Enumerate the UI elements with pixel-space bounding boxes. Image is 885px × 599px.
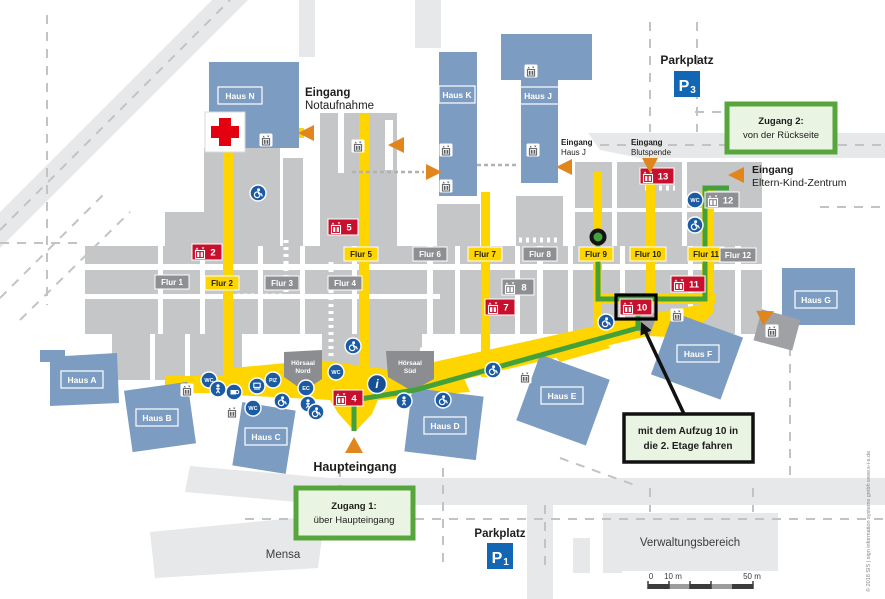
haus-c-label: Haus C: [251, 432, 280, 442]
wheelchair-icon: [485, 362, 501, 378]
svg-text:P: P: [679, 78, 690, 95]
wc-icon: WC: [328, 364, 344, 380]
parking-p1-label: Parkplatz: [474, 528, 525, 540]
parking-row: [573, 538, 590, 573]
haus-k-label: Haus K: [442, 90, 472, 100]
campus-map-page: Hörsaal Nord Hörsaal Süd: [0, 0, 885, 599]
elevator-icon: [527, 144, 540, 157]
wheelchair-icon: [274, 393, 290, 409]
scale-bar: 0 10 m 50 m: [648, 572, 761, 589]
campus-map: Hörsaal Nord Hörsaal Süd: [0, 0, 885, 599]
svg-text:mit dem Aufzug 10 in: mit dem Aufzug 10 in: [638, 426, 738, 437]
wheelchair-icon: [435, 392, 451, 408]
svg-text:WC: WC: [690, 198, 699, 204]
elevator-icon: [525, 65, 538, 78]
svg-text:3: 3: [690, 85, 696, 96]
svg-text:Blutspende: Blutspende: [631, 148, 672, 157]
elevator-5-badge: 5: [346, 222, 352, 233]
haus-a-label: Haus A: [68, 375, 97, 385]
wheelchair-icon: [345, 338, 361, 354]
entrance-notaufnahme-marker: [298, 125, 314, 141]
flur-4-badge: Flur 4: [334, 279, 356, 288]
svg-text:Süd: Süd: [404, 368, 416, 375]
svg-text:Haus J: Haus J: [561, 148, 586, 157]
callout-zugang2: Zugang 2: von der Rückseite: [727, 104, 835, 152]
building-haus-k: [439, 52, 477, 196]
elevator-11-badge: 11: [689, 279, 700, 290]
flur-12-badge: Flur 12: [725, 251, 752, 260]
elevator-icon: [519, 371, 532, 384]
svg-text:1: 1: [503, 557, 509, 568]
mensa-label: Mensa: [266, 549, 301, 561]
hoersaal-sued-label: Hörsaal: [398, 360, 422, 367]
person-icon: [396, 393, 412, 409]
haus-f-label: Haus F: [684, 349, 712, 359]
elevator-icon: [440, 180, 453, 193]
road-band: [185, 466, 885, 505]
svg-text:WC: WC: [331, 370, 340, 376]
verwaltung-label: Verwaltungsbereich: [640, 537, 740, 549]
haus-j-label: Haus J: [524, 91, 552, 101]
svg-text:EC: EC: [302, 386, 310, 392]
building-haus-j: [501, 34, 592, 183]
parking-p3-label: Parkplatz: [660, 53, 713, 67]
elevator-icon: [440, 144, 453, 157]
wheelchair-icon: [308, 404, 324, 420]
elevator-10-highlight: 10: [616, 295, 656, 319]
elevator-icon: [352, 140, 365, 153]
cafe-icon: [226, 384, 242, 400]
svg-text:50 m: 50 m: [743, 572, 761, 581]
elevator-icon: [671, 309, 684, 322]
entrance-blutspende-label: Eingang: [631, 138, 663, 147]
haus-g-label: Haus G: [801, 295, 831, 305]
haupteingang-label: Haupteingang: [313, 460, 396, 474]
flur-10-badge: Flur 10: [635, 250, 662, 259]
svg-text:WC: WC: [248, 406, 257, 412]
flur-3-badge: Flur 3: [271, 279, 293, 288]
road-band: [299, 0, 315, 57]
emergency-cross-icon: [205, 112, 245, 152]
elevator-7-badge: 7: [503, 302, 508, 313]
entrance-haus-j-label: Eingang: [561, 138, 593, 147]
hoersaal-nord-label: Hörsaal: [291, 360, 315, 367]
svg-text:10 m: 10 m: [664, 572, 682, 581]
flur-1-badge: Flur 1: [161, 278, 183, 287]
callout-zugang1: Zugang 1: über Haupteingang: [296, 488, 413, 538]
svg-text:von der Rückseite: von der Rückseite: [743, 130, 819, 141]
wheelchair-icon: [687, 217, 703, 233]
svg-text:Eltern-Kind-Zentrum: Eltern-Kind-Zentrum: [752, 177, 847, 189]
entrance-eltern-kind-label: Eingang: [752, 164, 793, 176]
flur-7-badge: Flur 7: [474, 250, 496, 259]
flur-11-badge: Flur 11: [693, 250, 719, 259]
elevator-icon: [260, 134, 273, 147]
copyright-credit: © 2018 SIS | sign information systems gm…: [865, 451, 872, 592]
atm-icon: [249, 378, 265, 394]
svg-text:Zugang 2:: Zugang 2:: [758, 116, 803, 127]
piz-icon: PIZ: [265, 372, 281, 388]
entrance-notaufnahme-label: Eingang: [305, 87, 350, 99]
elevator-8-badge: 8: [521, 282, 526, 293]
haus-b-label: Haus B: [142, 413, 171, 423]
haus-d-label: Haus D: [430, 421, 459, 431]
wheelchair-icon: [250, 185, 266, 201]
elevator-icon: [226, 406, 239, 419]
wheelchair-icon: [598, 314, 614, 330]
flur-2-badge: Flur 2: [211, 279, 233, 288]
svg-text:Notaufnahme: Notaufnahme: [305, 100, 374, 112]
elevator-icon: [181, 384, 194, 397]
ec-icon: EC: [298, 380, 314, 396]
entrance-haus-j-marker: [556, 159, 572, 175]
elevator-10-badge: 10: [637, 302, 648, 313]
elevator-12-badge: 12: [723, 195, 734, 206]
info-icon: i: [368, 375, 387, 394]
flur-5-badge: Flur 5: [350, 250, 372, 259]
flur-6-badge: Flur 6: [419, 250, 441, 259]
wc-icon: WC: [245, 400, 261, 416]
elevator-4-badge: 4: [351, 393, 357, 404]
person-icon: [210, 381, 226, 397]
flur-8-badge: Flur 8: [529, 250, 551, 259]
elevator-13-badge: 13: [658, 171, 669, 182]
scale-segments: [648, 581, 753, 589]
flur-9-badge: Flur 9: [585, 250, 607, 259]
parking-p1: Parkplatz P 1: [474, 528, 525, 569]
svg-text:0: 0: [649, 572, 654, 581]
elevator-icon: [766, 325, 779, 338]
route-start-marker: [592, 231, 605, 244]
haus-e-label: Haus E: [548, 391, 577, 401]
road-band: [415, 0, 441, 48]
svg-text:die 2. Etage fahren: die 2. Etage fahren: [644, 441, 733, 452]
parking-row: [603, 538, 622, 573]
parking-p3: Parkplatz P 3: [660, 53, 713, 97]
haus-n-label: Haus N: [225, 91, 254, 101]
svg-text:über Haupteingang: über Haupteingang: [314, 515, 395, 526]
elevator-2-badge: 2: [210, 247, 215, 258]
haupteingang-marker: [345, 437, 363, 453]
wc-icon: WC: [687, 192, 703, 208]
svg-text:PIZ: PIZ: [269, 378, 277, 384]
svg-text:Nord: Nord: [295, 368, 310, 375]
svg-text:Zugang 1:: Zugang 1:: [331, 501, 376, 512]
svg-text:P: P: [492, 550, 503, 567]
